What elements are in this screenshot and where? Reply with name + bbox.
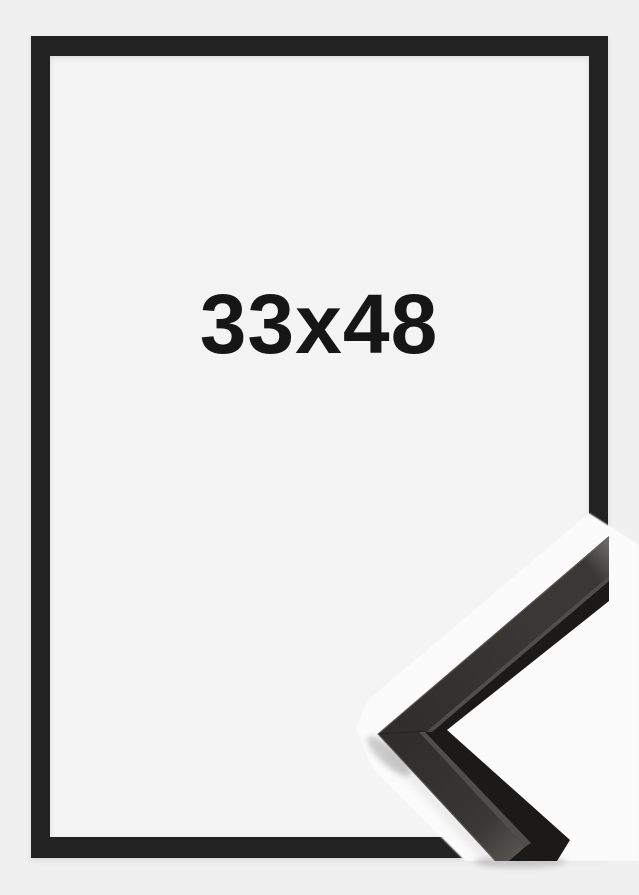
size-label: 33x48: [200, 277, 439, 371]
frame-product-graphic: 33x48: [0, 0, 639, 895]
product-image: 33x48: [0, 0, 639, 895]
